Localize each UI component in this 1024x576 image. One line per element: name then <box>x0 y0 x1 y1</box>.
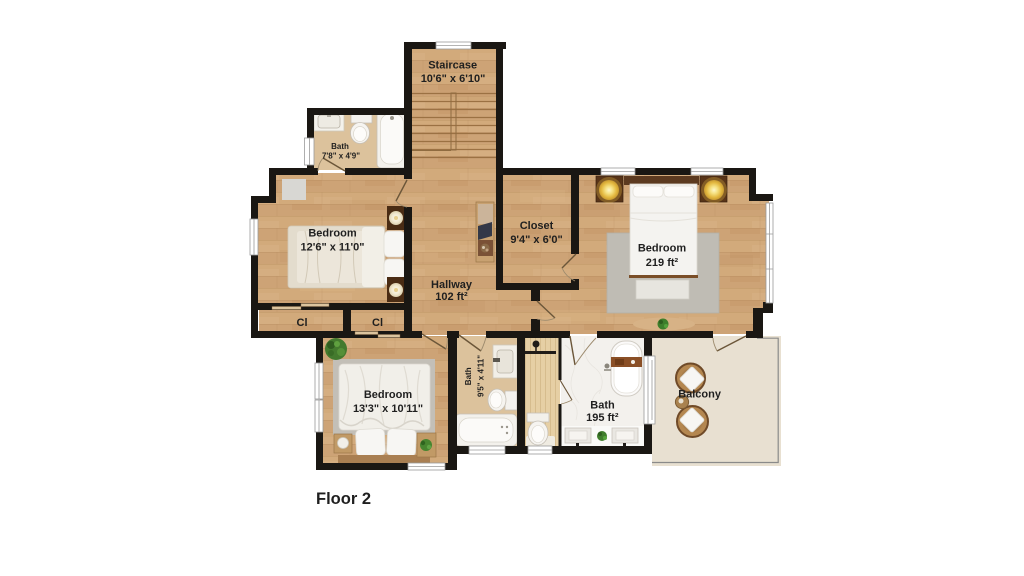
svg-text:9'4" x 6'0": 9'4" x 6'0" <box>510 234 562 246</box>
svg-text:Bedroom: Bedroom <box>308 228 357 240</box>
svg-text:10'6" x 6'10": 10'6" x 6'10" <box>421 73 486 85</box>
svg-text:13'3" x 10'11": 13'3" x 10'11" <box>353 403 423 415</box>
svg-text:Bedroom: Bedroom <box>364 389 413 401</box>
svg-text:219 ft²: 219 ft² <box>646 257 679 269</box>
svg-text:Bath: Bath <box>464 367 473 385</box>
svg-text:Bath: Bath <box>331 142 349 151</box>
svg-text:Closet: Closet <box>520 220 554 232</box>
svg-text:Hallway: Hallway <box>431 279 473 291</box>
svg-text:Bath: Bath <box>590 399 615 411</box>
svg-text:195 ft²: 195 ft² <box>586 412 619 424</box>
svg-text:Bedroom: Bedroom <box>638 242 687 254</box>
svg-text:Staircase: Staircase <box>428 60 477 72</box>
svg-text:Balcony: Balcony <box>678 389 722 401</box>
svg-text:Cl: Cl <box>297 317 308 329</box>
svg-text:12'6" x 11'0": 12'6" x 11'0" <box>301 242 365 254</box>
svg-text:9'5" x 4'11": 9'5" x 4'11" <box>477 355 486 397</box>
svg-text:7'8" x 4'9": 7'8" x 4'9" <box>322 152 360 161</box>
svg-text:Cl: Cl <box>372 317 383 329</box>
svg-text:102 ft²: 102 ft² <box>435 291 468 303</box>
svg-text:Floor 2: Floor 2 <box>316 490 371 508</box>
